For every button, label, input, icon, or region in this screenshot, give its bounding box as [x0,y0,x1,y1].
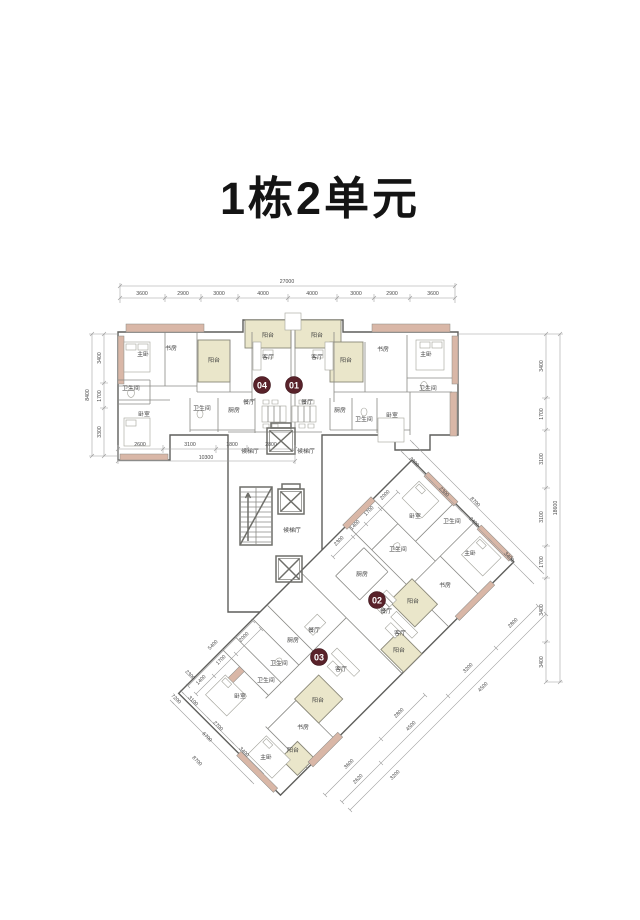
room-label: 卧室 [386,411,398,419]
room-label: 客厅 [311,353,323,361]
room-label: 书房 [297,723,309,731]
room-label: 卧室 [234,692,246,700]
room-label: 阳台 [312,696,324,704]
room-label: 餐厅 [380,607,392,615]
svg-text:3600: 3600 [427,291,439,297]
svg-text:1700: 1700 [539,556,545,568]
room-label: 客厅 [335,665,347,673]
room-label: 阳台 [407,597,419,605]
room-label: 主卧 [260,753,272,761]
svg-text:8400: 8400 [85,389,91,401]
svg-text:3300: 3300 [97,426,103,438]
svg-text:4500: 4500 [477,681,489,693]
left-dimensions: 8400 3400 1700 3300 [85,332,118,458]
svg-text:3400: 3400 [539,360,545,372]
room-label: 客厅 [394,629,406,637]
room-label: 餐厅 [301,398,313,406]
svg-text:3100: 3100 [184,442,196,448]
svg-text:2800: 2800 [265,442,277,448]
svg-text:2900: 2900 [177,291,189,297]
room-label: 阳台 [287,746,299,754]
right-dimensions: 18600 3400 1700 3100 3100 1700 3400 3400 [458,332,563,684]
room-label: 阳台 [208,356,220,364]
room-label: 卫生间 [355,415,373,423]
svg-text:1800: 1800 [226,442,238,448]
svg-text:2900: 2900 [386,291,398,297]
room-label: 卫生间 [389,545,407,553]
svg-text:3000: 3000 [213,291,225,297]
room-label: 卫生间 [270,659,288,667]
svg-text:4000: 4000 [306,291,318,297]
svg-text:3600: 3600 [343,758,355,770]
svg-text:1700: 1700 [539,408,545,420]
room-label: 书房 [165,344,177,352]
svg-text:3000: 3000 [350,291,362,297]
floor-plan: 候梯厅 候梯厅 候梯厅 主卧 书房 阳台 客厅 卫生间 卧室 卫生间 厨房 餐厅… [0,0,640,920]
svg-text:2800: 2800 [507,617,519,629]
top-dimensions: 27000 3600 2900 3000 4000 4000 3000 2900… [118,279,457,303]
room-label: 书房 [439,581,451,589]
room-label: 客厅 [262,353,274,361]
room-label: 厨房 [228,406,240,414]
room-label: 厨房 [287,636,299,644]
unit-badge: 01 [286,377,303,394]
room-label: 阳台 [311,331,323,339]
room-label: 餐厅 [243,398,255,406]
diagonal-wing [174,456,518,800]
room-label: 候梯厅 [241,447,259,455]
svg-text:10300: 10300 [199,455,214,461]
svg-text:6700: 6700 [201,731,213,743]
unit-badge: 04 [254,377,271,394]
svg-text:3400: 3400 [539,656,545,668]
room-label: 候梯厅 [297,447,315,455]
room-label: 厨房 [334,406,346,414]
svg-text:2800: 2800 [393,707,405,719]
svg-text:27000: 27000 [280,279,295,285]
svg-text:1700: 1700 [97,390,103,402]
unit-badge: 02 [369,592,386,609]
room-label: 卧室 [409,512,421,520]
svg-text:3600: 3600 [136,291,148,297]
svg-text:5400: 5400 [207,639,219,651]
room-label: 阳台 [340,356,352,364]
room-label: 卫生间 [257,676,275,684]
room-label: 餐厅 [308,626,320,634]
room-label: 卫生间 [122,384,140,392]
svg-text:18600: 18600 [553,501,559,516]
room-label: 书房 [377,345,389,353]
room-label: 卫生间 [193,404,211,412]
svg-text:2600: 2600 [134,442,146,448]
svg-text:02: 02 [372,596,382,606]
room-label: 厨房 [356,570,368,578]
svg-text:3400: 3400 [97,352,103,364]
room-label: 卧室 [138,410,150,418]
room-label: 卫生间 [419,384,437,392]
svg-text:04: 04 [257,381,267,391]
svg-text:01: 01 [289,381,299,391]
room-label: 主卧 [420,350,432,358]
svg-text:2620: 2620 [352,773,364,785]
roof-notch [285,313,301,330]
svg-text:8700: 8700 [191,755,203,767]
room-label: 主卧 [137,350,149,358]
svg-text:4500: 4500 [405,720,417,732]
unit-badge: 03 [311,649,328,666]
svg-text:8700: 8700 [469,496,481,508]
svg-text:3100: 3100 [539,453,545,465]
room-label: 阳台 [262,331,274,339]
svg-text:3100: 3100 [539,511,545,523]
room-label: 主卧 [464,549,476,557]
room-label: 阳台 [393,646,405,654]
room-label: 卫生间 [443,517,461,525]
svg-text:3200: 3200 [462,662,474,674]
svg-text:4000: 4000 [257,291,269,297]
room-label: 候梯厅 [283,526,301,534]
svg-text:3400: 3400 [539,604,545,616]
svg-text:3200: 3200 [389,769,401,781]
svg-text:03: 03 [314,653,324,663]
